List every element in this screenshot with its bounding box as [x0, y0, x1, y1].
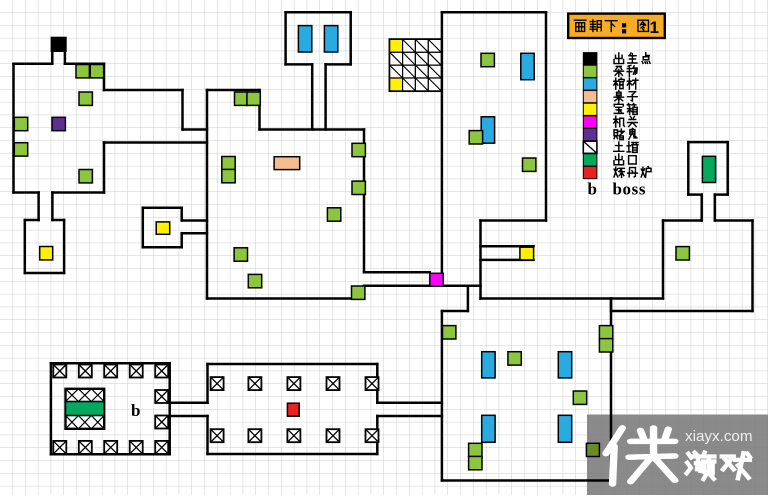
svg-text:b: b [131, 401, 140, 420]
svg-text:boss: boss [613, 180, 647, 199]
svg-text:b: b [588, 180, 597, 199]
svg-text:1: 1 [650, 18, 659, 37]
svg-text:xiayx.com: xiayx.com [685, 428, 753, 445]
